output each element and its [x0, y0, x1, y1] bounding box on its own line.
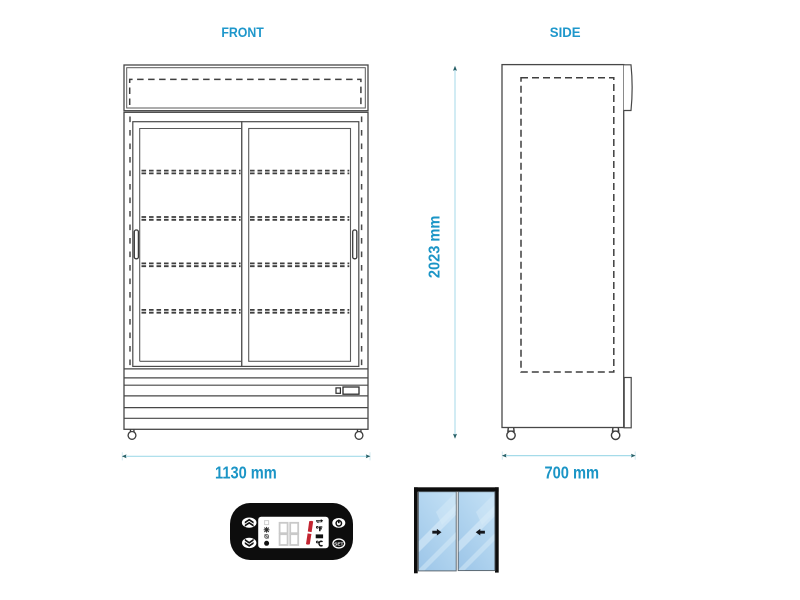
svg-text:700 mm: 700 mm: [545, 462, 600, 482]
svg-text:1130 mm: 1130 mm: [215, 463, 277, 483]
svg-text:SET: SET: [334, 541, 343, 547]
svg-text:2023 mm: 2023 mm: [427, 216, 444, 279]
svg-text:SIDE: SIDE: [550, 24, 581, 40]
svg-text:FRONT: FRONT: [221, 24, 264, 40]
